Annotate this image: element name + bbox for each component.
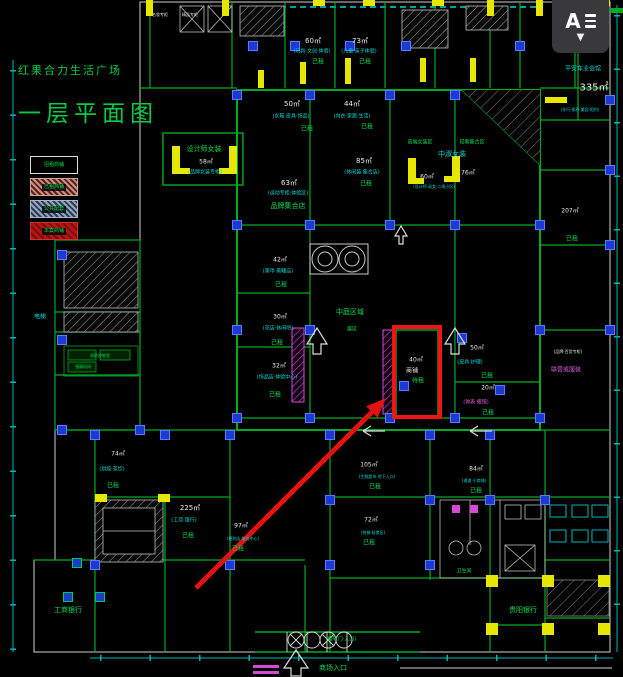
screenshot-root: 名妆专柜精品专柜60㎡(玩具·文创·体验)已租73㎡(儿童·亲子体验)已租平安车… [0,0,623,677]
title-block: 红果合力生活广场 一层平面图 [18,62,158,128]
door-marks [95,0,610,502]
annotation-arrow-shaft [196,410,374,588]
direction-arrows [284,226,492,676]
legend-label: 本案商铺 [42,228,66,235]
atrium-escalator-circles [310,244,368,274]
legend: 招租商铺 已租商铺 公共配套 本案商铺 [30,156,78,240]
red-annotation [196,327,440,588]
dropdown-caret-icon[interactable]: ▼ [577,32,585,44]
revolving-doors [287,632,352,652]
legend-label: 已租商铺 [42,184,66,191]
text-annotation-tool-button[interactable]: A ▼ [552,0,609,53]
legend-item-subject: 本案商铺 [30,222,78,240]
legend-item-leased: 已租商铺 [30,178,78,196]
legend-item-public: 公共配套 [30,200,78,218]
letter-a-icon: A [565,11,580,31]
legend-item-available: 招租商铺 [30,156,78,174]
toilet-block [440,500,545,578]
text-lines-icon [585,14,596,28]
window-symbols [550,505,608,542]
project-title: 红果合力生活广场 [18,62,158,78]
escalator-strips [253,328,394,674]
highlight-rectangle [394,327,440,417]
plan-fragment [610,8,623,13]
legend-label: 公共配套 [42,206,66,213]
drawing-title: 一层平面图 [18,94,158,128]
text-tool-icon: A [565,11,595,31]
legend-label: 招租商铺 [42,162,66,169]
entrance-arrow [284,650,308,676]
